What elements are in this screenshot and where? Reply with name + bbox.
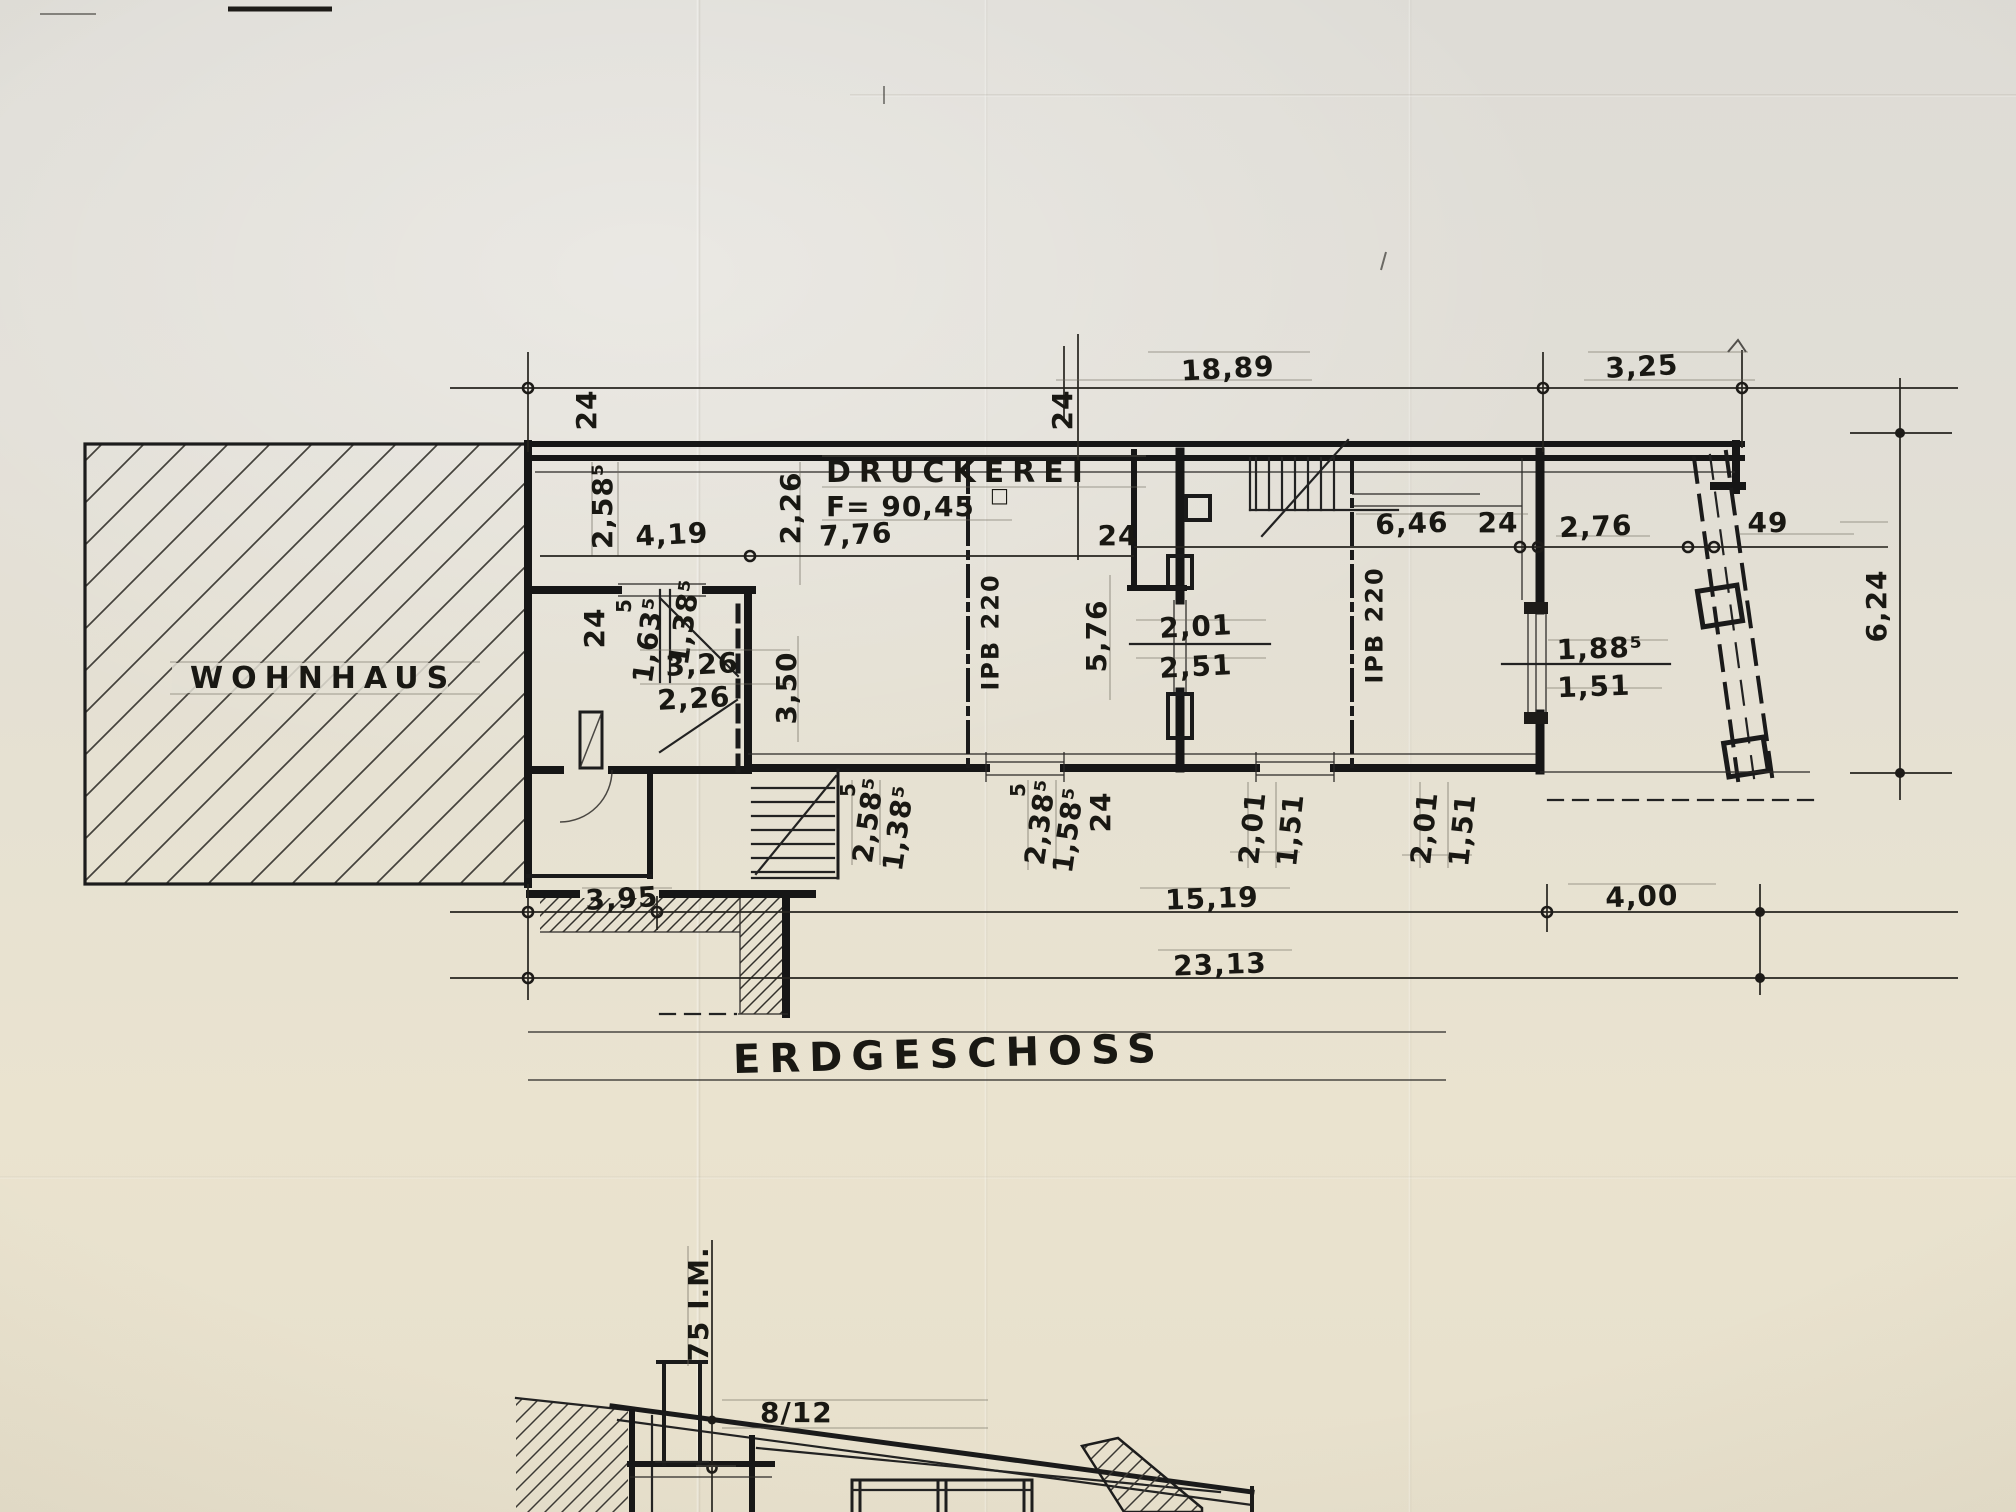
right-dimension-group: 6,46 24 2,76 49 <box>1134 506 1888 552</box>
dimension-dot <box>1755 907 1765 917</box>
dim-rafter: 8/12 <box>760 1396 833 1429</box>
dim-right-width: 6,46 <box>1375 506 1449 542</box>
dim-door-mid-top: 2,01 <box>1158 608 1233 645</box>
druckerei-area-label: F= 90,45 <box>826 490 975 523</box>
stray-mark <box>1381 252 1386 270</box>
dim-bottom-right: 4,00 <box>1605 879 1679 915</box>
stair-direction-line <box>756 776 836 874</box>
dim-left-height: 2,58⁵ <box>586 463 619 549</box>
title-group: ERDGESCHOSS <box>528 1026 1446 1083</box>
dim-exit-wall: 24 <box>1084 792 1117 833</box>
exit-dimension-group: 5 2,38⁵ 1,58⁵ 24 <box>1006 777 1117 875</box>
dim-bottom-total: 23,13 <box>1173 946 1268 982</box>
door2-dimension-group: 2,01 1,51 <box>1230 782 1311 868</box>
column-hatch <box>740 898 786 1014</box>
stray-mark <box>1728 340 1746 352</box>
dim-mid-wall: 24 <box>1098 519 1139 552</box>
dim-top-wall: 24 <box>1046 390 1079 431</box>
druckerei-label: DRUCKEREI <box>826 455 1091 490</box>
dim-wc-width-inner: 2,26 <box>656 680 731 717</box>
dim-wc-width: 3,26 <box>664 646 739 683</box>
window-dimension-group: 1,88⁵ 1,51 <box>1502 631 1670 705</box>
dim-door-mid-bottom: 2,51 <box>1158 648 1233 685</box>
dashed-rail <box>1726 452 1772 776</box>
floor-plan-drawing: WOHNHAUS <box>0 0 2016 1512</box>
dimension-dot <box>1895 428 1905 438</box>
dim-window-bottom: 1,51 <box>1557 669 1631 705</box>
dim-door3-bottom: 1,51 <box>1442 792 1482 868</box>
dim-porch-edge: 49 <box>1748 506 1789 539</box>
window-end-block <box>1524 602 1548 614</box>
exit-staircase <box>752 770 838 878</box>
sheet-title: ERDGESCHOSS <box>732 1026 1165 1083</box>
door3-dimension-group: 2,01 1,51 <box>1402 782 1483 868</box>
stair-guide-lines <box>1352 494 1522 506</box>
dim-bottom-main: 15,19 <box>1165 880 1260 916</box>
druckerei-label-group: DRUCKEREI F= 90,45 □ <box>822 455 1146 523</box>
blueprint-sheet: WOHNHAUS <box>0 0 2016 1512</box>
dim-wc-height: 3,50 <box>770 651 803 724</box>
dim-bottom-terrace: 3,95 <box>584 880 659 917</box>
dim-door2-top: 2,01 <box>1232 790 1272 866</box>
stair-post <box>1724 737 1769 777</box>
ground-hatch-left <box>516 1398 628 1512</box>
druckerei-area-unit: □ <box>990 483 1009 507</box>
beam-label-right: IPB 220 <box>1360 566 1388 683</box>
window-lines <box>1528 610 1546 714</box>
dim-wc-wall: 24 <box>578 608 611 649</box>
section-drawing: 75 I.M. 8/12 <box>516 1240 1252 1512</box>
dim-door2-bottom: 1,51 <box>1270 792 1310 868</box>
stair-post <box>1697 585 1742 627</box>
exterior-stair-dashed <box>1540 452 1815 800</box>
dimension-dot <box>1895 768 1905 778</box>
wohnhaus-block: WOHNHAUS <box>85 444 528 884</box>
dim-exit-step: 5 <box>1006 783 1030 797</box>
wohnhaus-label: WOHNHAUS <box>190 661 456 696</box>
side-height-dimension: 6,24 <box>1840 378 1952 800</box>
dim-chimney-height: 75 I.M. <box>682 1246 715 1361</box>
dim-room1-width: 4,19 <box>634 516 709 553</box>
dim-wc-step: 5 <box>612 599 636 613</box>
dim-room1-height: 2,26 <box>774 471 807 544</box>
paper-marks <box>40 9 1746 352</box>
wc-dimension-group: 5 1,63⁵ 1,38⁵ 24 3,26 2,26 3,50 <box>578 577 803 742</box>
dim-hall-height: 5,76 <box>1080 599 1113 672</box>
dim-top-main: 18,89 <box>1180 350 1275 388</box>
beam-label-left: IPB 220 <box>976 573 1004 690</box>
dim-window-top: 1,88⁵ <box>1556 631 1643 667</box>
door-leaf-line <box>580 712 602 768</box>
dimension-dot <box>1755 973 1765 983</box>
dimension-dot <box>708 1416 717 1425</box>
dim-porch-width: 2,76 <box>1559 509 1633 545</box>
dim-right-wall: 24 <box>1478 506 1519 539</box>
dim-left-wall: 24 <box>570 390 603 431</box>
neighbor-wall-hatch <box>1082 1438 1202 1512</box>
window-frame <box>852 1480 1032 1512</box>
window-end-block <box>1524 712 1548 724</box>
dim-top-right: 3,25 <box>1604 348 1679 385</box>
door-swing-arc <box>560 770 612 822</box>
hall-dimension-group: 5,76 2,01 2,51 <box>1080 575 1270 700</box>
pier-hatched <box>1186 496 1210 520</box>
stair-dimension-group: 5 2,58⁵ 1,38⁵ <box>836 775 921 873</box>
dim-side-height: 6,24 <box>1860 569 1893 642</box>
